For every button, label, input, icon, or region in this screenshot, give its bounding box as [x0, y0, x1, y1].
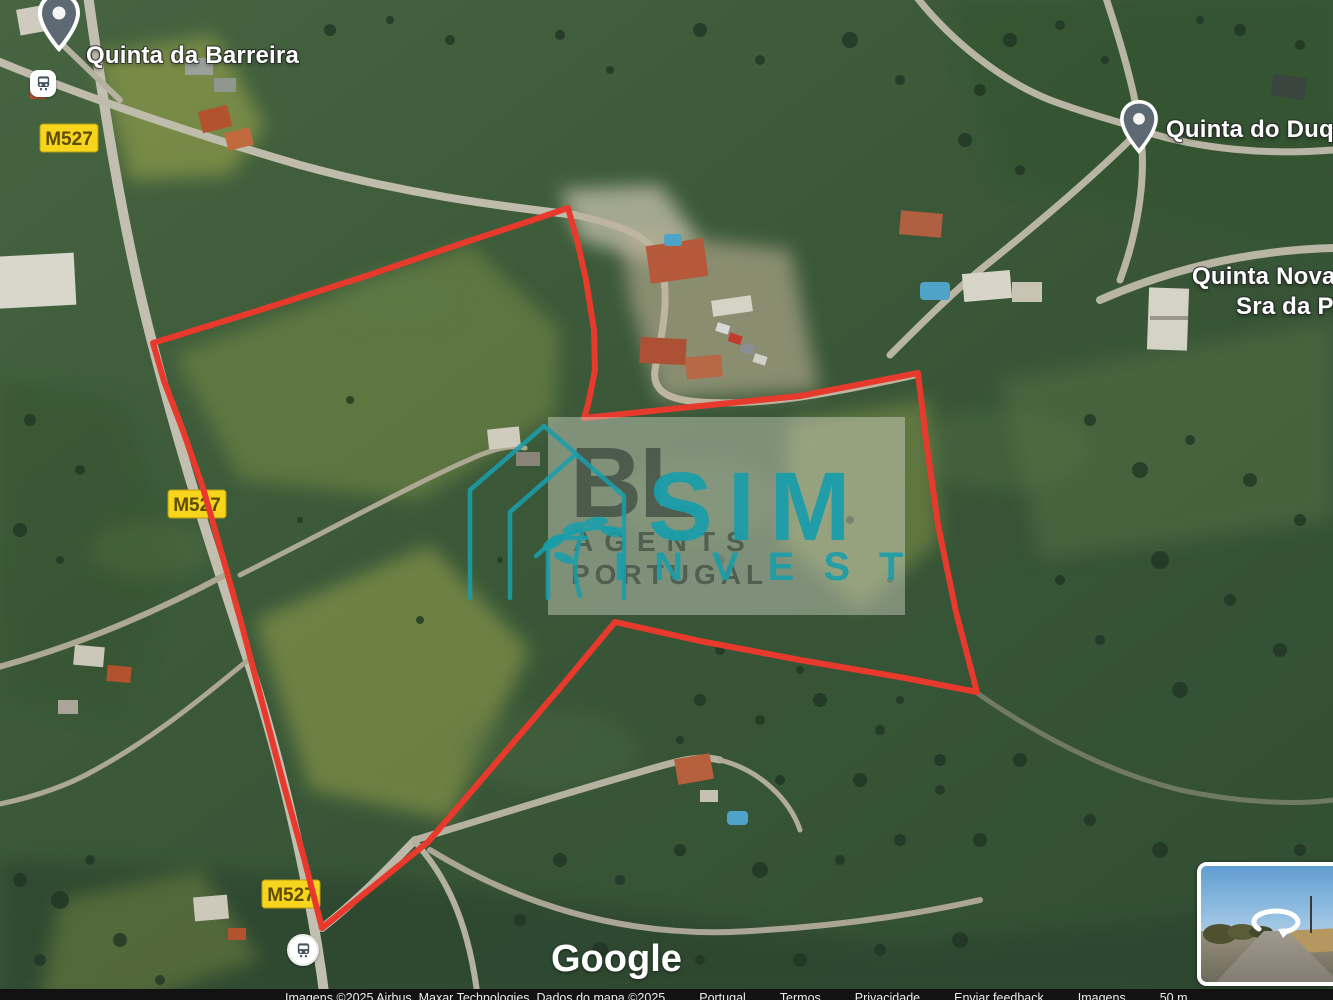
attribution-link-terms[interactable]: Termos	[780, 991, 821, 1000]
google-logo[interactable]: Google	[551, 938, 682, 981]
rotate-arrow-icon	[1245, 904, 1307, 940]
attribution-scale: 50 m	[1160, 991, 1188, 1000]
road-badge-m527-middle: M527	[168, 490, 226, 518]
bus-icon	[295, 942, 312, 959]
attribution-imagery: Imagens ©2025 Airbus, Maxar Technologies…	[285, 991, 665, 1000]
bus-icon	[35, 75, 52, 92]
label-quinta-nova-line2: Sra da Pieda	[1236, 292, 1333, 322]
attribution-bar: Imagens ©2025 Airbus, Maxar Technologies…	[0, 989, 1333, 1000]
svg-text:M527: M527	[173, 495, 221, 516]
label-quinta-da-barreira[interactable]: Quinta da Barreira	[86, 42, 299, 70]
svg-text:M527: M527	[267, 885, 315, 906]
watermark-sim-text: SIM	[648, 458, 865, 555]
map-pin-icon-quinta-do-duque[interactable]	[1118, 100, 1160, 154]
svg-text:M527: M527	[45, 129, 93, 150]
attribution-link-region[interactable]: Portugal	[699, 991, 746, 1000]
street-view-thumbnail[interactable]	[1197, 862, 1333, 986]
label-quinta-nova-line1: Quinta Nova Nos	[1192, 263, 1333, 290]
watermark-invest-text: INVEST	[614, 545, 932, 590]
attribution-link-feedback[interactable]: Enviar feedback	[954, 991, 1044, 1000]
attribution-link-privacy[interactable]: Privacidade	[855, 991, 920, 1000]
label-quinta-do-duque[interactable]: Quinta do Duque	[1166, 116, 1333, 144]
bus-stop-icon-top[interactable]	[30, 70, 56, 97]
bus-stop-icon-bottom[interactable]	[287, 934, 319, 966]
road-badge-m527-top: M527	[40, 124, 98, 152]
map-pin-icon-quinta-da-barreira[interactable]	[36, 0, 82, 52]
attribution-link-imagery[interactable]: Imagens	[1078, 991, 1126, 1000]
map-viewport: M527 M527 M527 BL AGENTS PORTUGAL	[0, 0, 1333, 1000]
label-quinta-nova[interactable]: Quinta Nova Nos Sra da Pieda	[1192, 262, 1333, 322]
street-view-pole	[1310, 896, 1312, 933]
